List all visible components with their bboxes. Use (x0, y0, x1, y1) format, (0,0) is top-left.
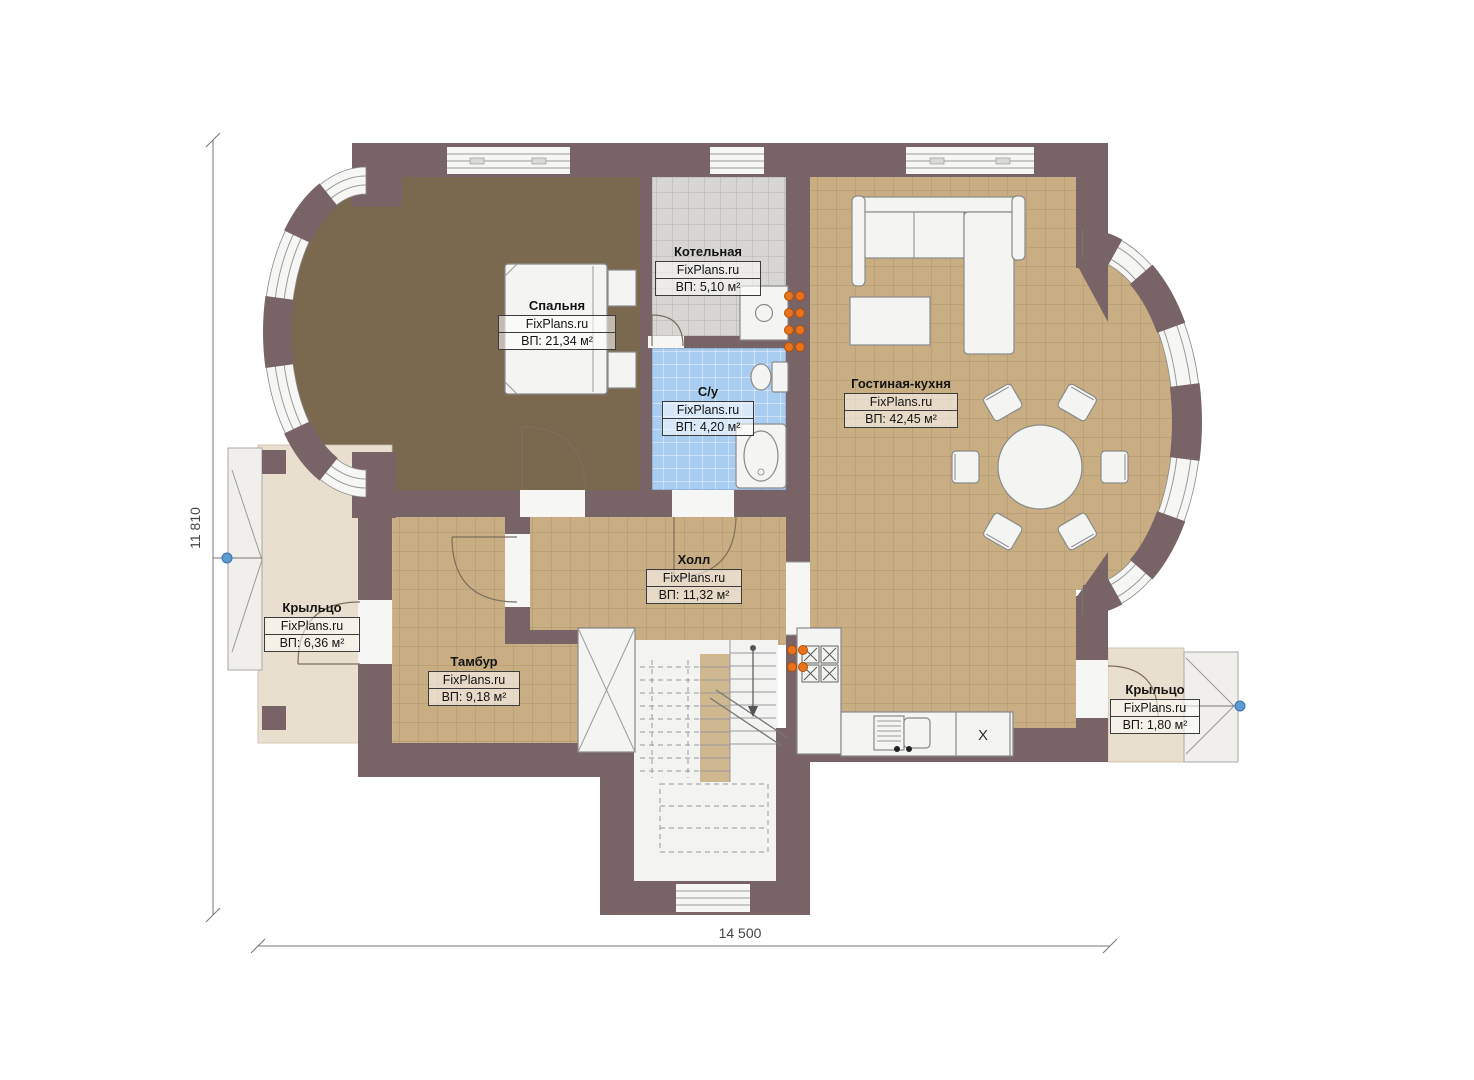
kitchen-dishwasher-mark: X (978, 727, 988, 744)
stair-flight-strip (700, 654, 730, 782)
room-area: ВП: 4,20 м² (663, 418, 753, 435)
room-label-bedroom: Спальня FixPlans.ru ВП: 21,34 м² (498, 298, 616, 350)
window-top-3 (906, 147, 1034, 174)
bedroom-bay-pier-2 (278, 298, 280, 366)
wall-vestibule-hall-horiz (505, 630, 585, 644)
room-info-box: FixPlans.ru ВП: 11,32 м² (646, 569, 742, 604)
room-name: Котельная (655, 244, 761, 259)
kitchen-sink (874, 716, 930, 752)
wall-bedroom-boiler (640, 177, 652, 493)
living-bay-pier-connector-bottom (1083, 591, 1115, 600)
window-top-1 (447, 147, 570, 174)
wall-stairwell-right (776, 743, 810, 915)
floor-plan-drawing: X (0, 0, 1474, 1080)
coffee-table (850, 297, 930, 345)
dimension-left: 11 810 (187, 133, 220, 922)
room-area: ВП: 1,80 м² (1111, 716, 1199, 733)
dimension-height-label: 11 810 (187, 507, 203, 549)
porch-left-level-marker (222, 553, 232, 563)
dimension-width-label: 14 500 (719, 925, 762, 941)
room-info-box: FixPlans.ru ВП: 6,36 м² (264, 617, 360, 652)
room-info-box: FixPlans.ru ВП: 42,45 м² (844, 393, 958, 428)
room-info-box: FixPlans.ru ВП: 21,34 м² (498, 315, 616, 350)
room-area: ВП: 11,32 м² (647, 586, 741, 603)
room-brand: FixPlans.ru (845, 394, 957, 410)
floor-plan-canvas: X (0, 0, 1474, 1080)
dining-table (998, 425, 1082, 509)
wardrobe (578, 628, 635, 752)
window-top-2 (710, 147, 764, 174)
porch-left-steps (228, 448, 262, 670)
porch-right-level-marker (1235, 701, 1245, 711)
room-area: ВП: 9,18 м² (429, 688, 519, 705)
room-name: Гостиная-кухня (844, 376, 958, 391)
room-brand: FixPlans.ru (265, 618, 359, 634)
window-stairwell (676, 884, 750, 912)
room-brand: FixPlans.ru (429, 672, 519, 688)
room-label-boiler: Котельная FixPlans.ru ВП: 5,10 м² (655, 244, 761, 296)
room-label-living-kitchen: Гостиная-кухня FixPlans.ru ВП: 42,45 м² (844, 376, 958, 428)
room-brand: FixPlans.ru (1111, 700, 1199, 716)
room-brand: FixPlans.ru (663, 402, 753, 418)
room-info-box: FixPlans.ru ВП: 1,80 м² (1110, 699, 1200, 734)
nightstand-bottom (608, 352, 636, 388)
room-label-bathroom: С/у FixPlans.ru ВП: 4,20 м² (662, 384, 754, 436)
room-brand: FixPlans.ru (656, 262, 760, 278)
porch-left-pier-top (262, 450, 286, 474)
room-name: Крыльцо (264, 600, 360, 615)
room-label-porch-left: Крыльцо FixPlans.ru ВП: 6,36 м² (264, 600, 360, 652)
room-area: ВП: 42,45 м² (845, 410, 957, 427)
dimension-bottom: 14 500 (251, 925, 1117, 953)
room-area: ВП: 5,10 м² (656, 278, 760, 295)
room-name: Тамбур (428, 654, 520, 669)
room-info-box: FixPlans.ru ВП: 9,18 м² (428, 671, 520, 706)
room-brand: FixPlans.ru (647, 570, 741, 586)
room-label-vestibule: Тамбур FixPlans.ru ВП: 9,18 м² (428, 654, 520, 706)
room-area: ВП: 21,34 м² (499, 332, 615, 349)
room-name: С/у (662, 384, 754, 399)
living-bay-pier-2 (1185, 385, 1187, 459)
kitchen-counter-horizontal: X (841, 712, 1013, 756)
room-name: Крыльцо (1110, 682, 1200, 697)
room-name: Холл (646, 552, 742, 567)
porch-left-pier-bottom (262, 706, 286, 730)
living-bay-pier-connector-top (1083, 244, 1115, 253)
room-area: ВП: 6,36 м² (265, 634, 359, 651)
wall-bedroom-hall (358, 490, 652, 517)
room-brand: FixPlans.ru (499, 316, 615, 332)
room-label-porch-right: Крыльцо FixPlans.ru ВП: 1,80 м² (1110, 682, 1200, 734)
room-info-box: FixPlans.ru ВП: 5,10 м² (655, 261, 761, 296)
wall-vestibule-hall-top (505, 517, 530, 534)
room-info-box: FixPlans.ru ВП: 4,20 м² (662, 401, 754, 436)
opening-hall-living (786, 562, 810, 635)
room-name: Спальня (498, 298, 616, 313)
room-label-hall: Холл FixPlans.ru ВП: 11,32 м² (646, 552, 742, 604)
